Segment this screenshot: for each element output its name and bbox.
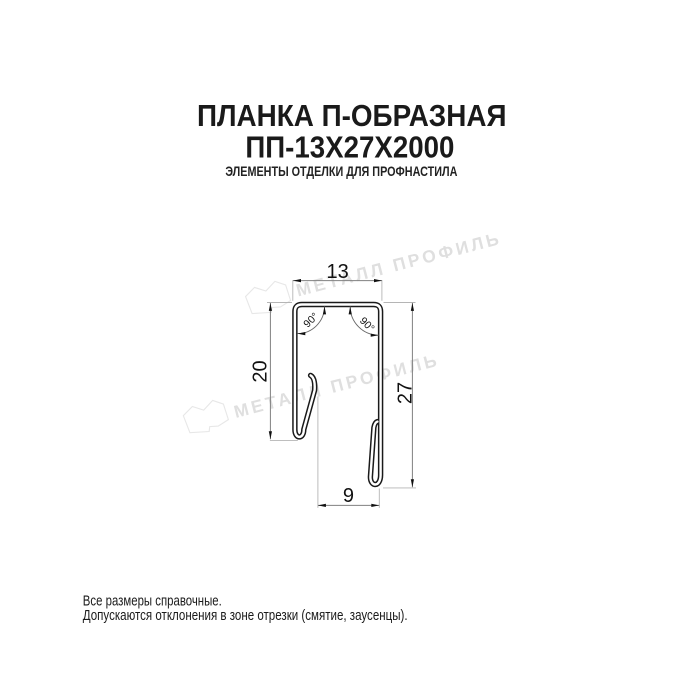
svg-text:ЭЛЕМЕНТЫ ОТДЕЛКИ ДЛЯ ПРОФНАСТИ: ЭЛЕМЕНТЫ ОТДЕЛКИ ДЛЯ ПРОФНАСТИЛА bbox=[225, 163, 457, 179]
svg-text:ПЛАНКА П-ОБРАЗНАЯ: ПЛАНКА П-ОБРАЗНАЯ bbox=[197, 99, 507, 133]
svg-text:13: 13 bbox=[326, 261, 348, 283]
svg-text:27: 27 bbox=[395, 382, 417, 404]
svg-text:9: 9 bbox=[343, 485, 354, 507]
svg-text:Все размеры справочные.: Все размеры справочные. bbox=[83, 593, 222, 609]
svg-text:ПП-13Х27Х2000: ПП-13Х27Х2000 bbox=[245, 129, 454, 164]
svg-text:Допускаются отклонения в зоне: Допускаются отклонения в зоне отрезки (с… bbox=[83, 608, 408, 624]
svg-text:20: 20 bbox=[250, 360, 272, 382]
